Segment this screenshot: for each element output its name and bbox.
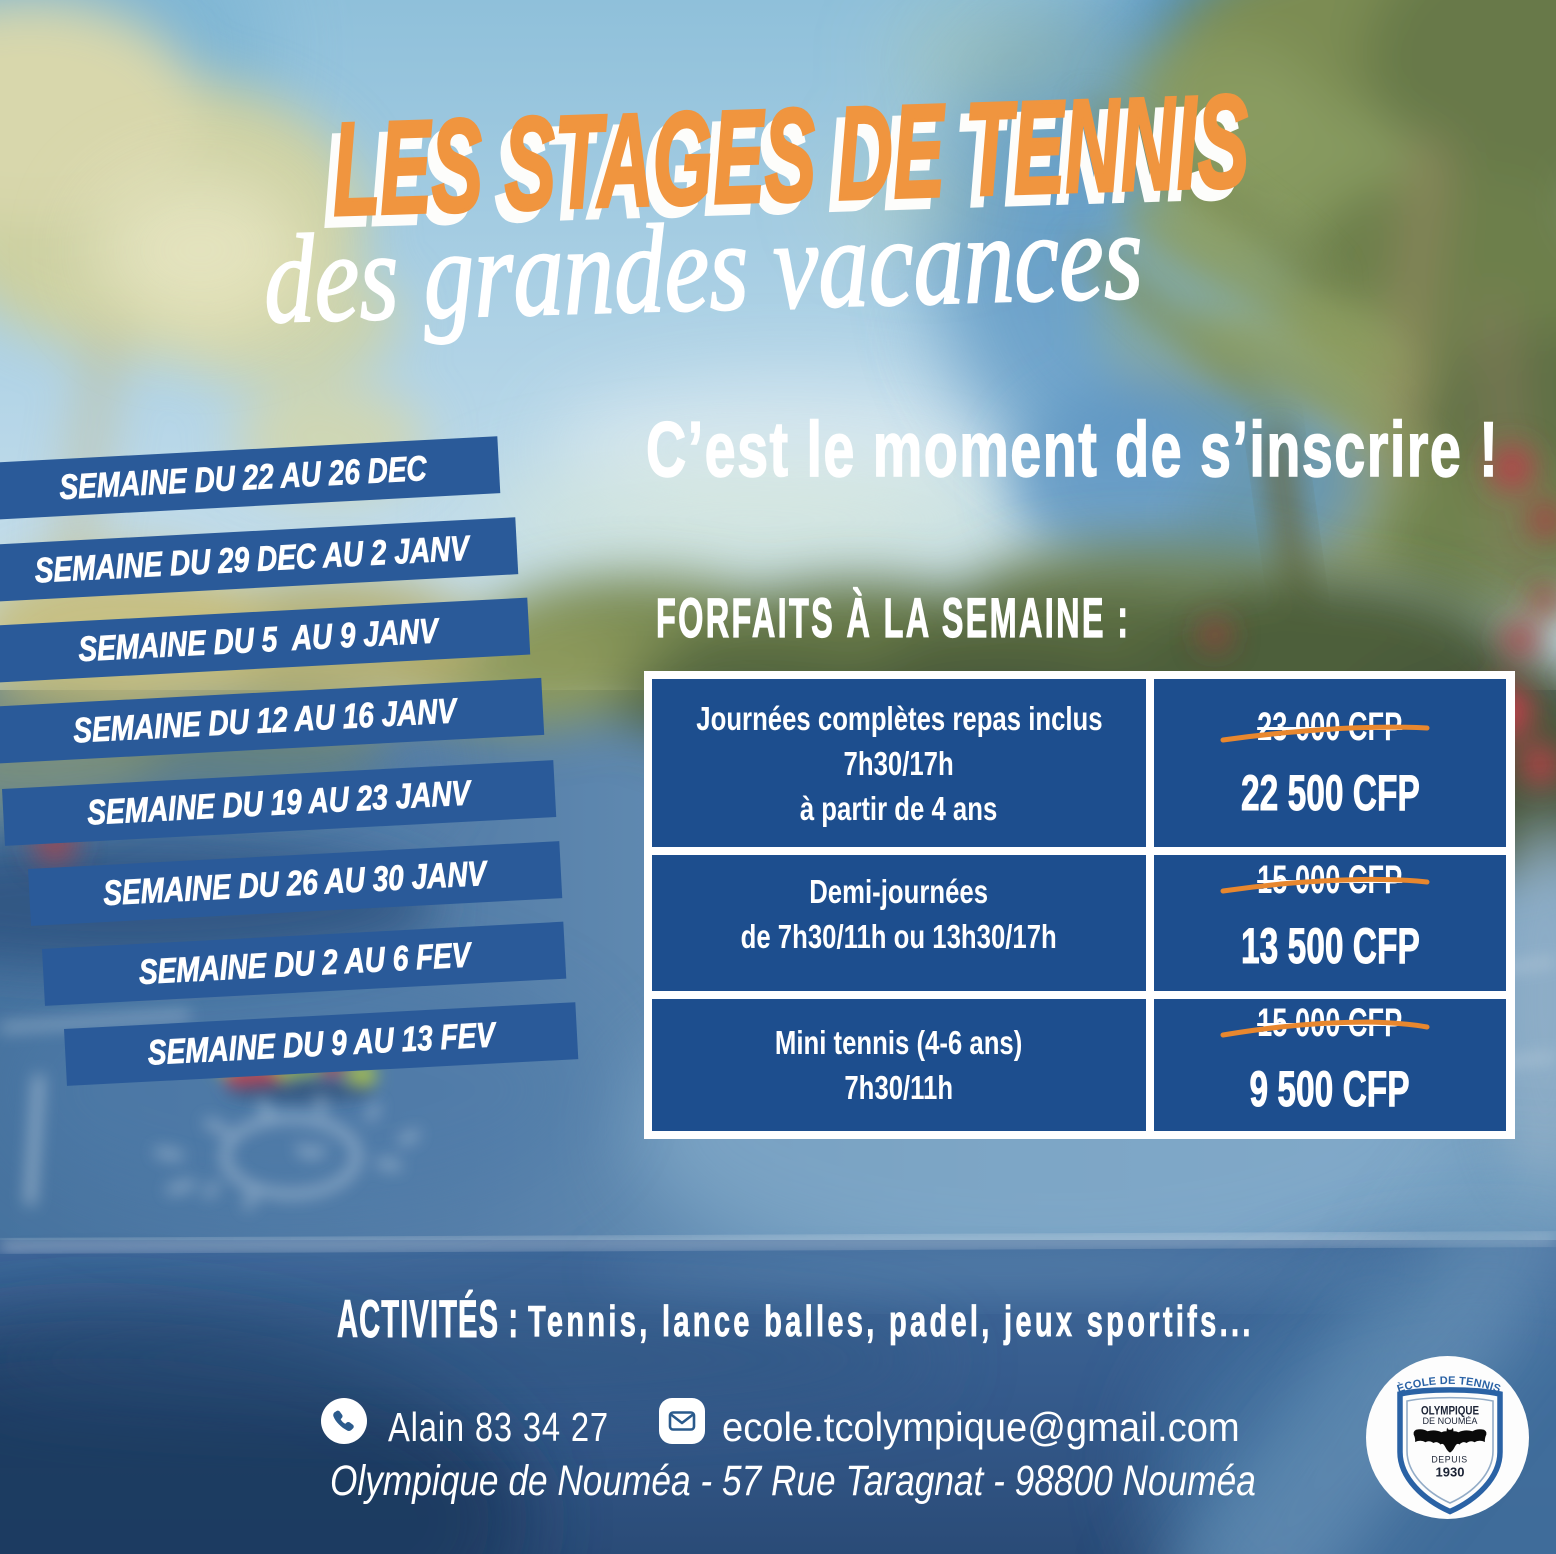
svg-text:DEPUIS: DEPUIS bbox=[1431, 1455, 1467, 1465]
svg-text:1930: 1930 bbox=[1436, 1465, 1465, 1480]
svg-text:DE NOUMÉA: DE NOUMÉA bbox=[1423, 1416, 1478, 1426]
